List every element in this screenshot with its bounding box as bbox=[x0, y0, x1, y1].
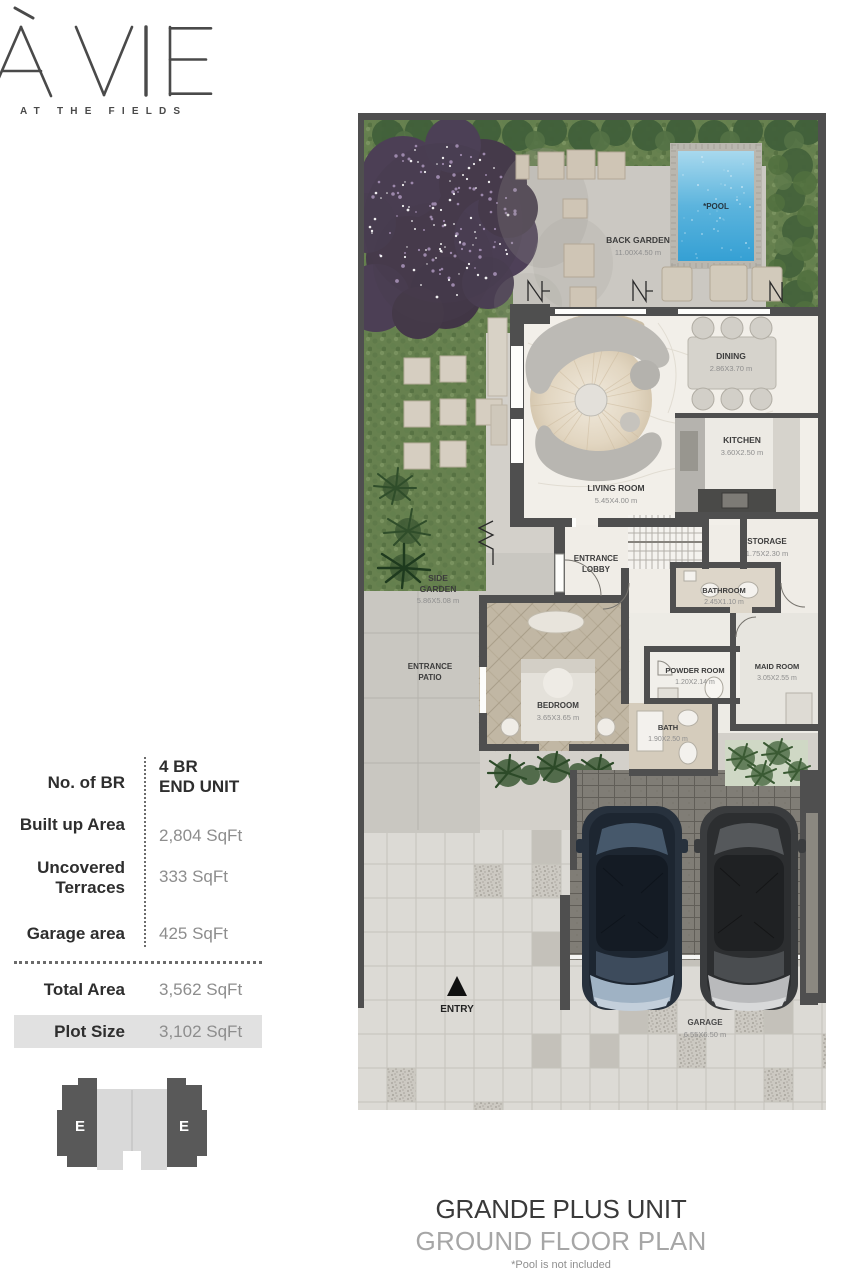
svg-text:SIDE: SIDE bbox=[428, 573, 448, 583]
svg-text:BEDROOM: BEDROOM bbox=[537, 701, 579, 710]
svg-text:3.60X2.50 m: 3.60X2.50 m bbox=[721, 448, 764, 457]
svg-text:E: E bbox=[75, 1118, 85, 1135]
svg-text:BACK GARDEN: BACK GARDEN bbox=[606, 235, 670, 245]
svg-text:3.05X2.55 m: 3.05X2.55 m bbox=[757, 675, 797, 682]
svg-text:6.55X6.50 m: 6.55X6.50 m bbox=[684, 1030, 727, 1039]
svg-text:DINING: DINING bbox=[716, 351, 746, 361]
svg-text:E: E bbox=[179, 1118, 189, 1135]
svg-text:2.86X3.70 m: 2.86X3.70 m bbox=[710, 364, 753, 373]
svg-text:BATHROOM: BATHROOM bbox=[702, 586, 746, 595]
svg-text:11.00X4.50 m: 11.00X4.50 m bbox=[615, 248, 661, 257]
svg-text:ENTRY: ENTRY bbox=[440, 1004, 474, 1015]
svg-text:GARAGE: GARAGE bbox=[687, 1018, 723, 1027]
svg-text:GARDEN: GARDEN bbox=[420, 584, 457, 594]
svg-text:1.20X2.14 m: 1.20X2.14 m bbox=[675, 679, 715, 686]
svg-text:ENTRANCE: ENTRANCE bbox=[574, 554, 619, 563]
svg-text:ENTRANCE: ENTRANCE bbox=[408, 662, 453, 671]
svg-text:POWDER ROOM: POWDER ROOM bbox=[665, 666, 724, 675]
svg-text:1.90X2.50 m: 1.90X2.50 m bbox=[648, 736, 688, 743]
svg-text:5.45X4.00 m: 5.45X4.00 m bbox=[595, 496, 638, 505]
svg-text:1.75X2.30 m: 1.75X2.30 m bbox=[746, 549, 789, 558]
svg-text:PATIO: PATIO bbox=[418, 673, 441, 682]
svg-text:2.45X1.10 m: 2.45X1.10 m bbox=[704, 599, 744, 606]
svg-text:STORAGE: STORAGE bbox=[747, 537, 787, 546]
svg-text:5.86X5.08 m: 5.86X5.08 m bbox=[417, 596, 460, 605]
svg-text:KITCHEN: KITCHEN bbox=[723, 435, 761, 445]
svg-text:LIVING ROOM: LIVING ROOM bbox=[587, 483, 644, 493]
svg-text:*POOL: *POOL bbox=[703, 202, 729, 211]
svg-text:BATH: BATH bbox=[658, 723, 678, 732]
svg-text:3.65X3.65 m: 3.65X3.65 m bbox=[537, 713, 580, 722]
svg-text:MAID ROOM: MAID ROOM bbox=[755, 662, 800, 671]
